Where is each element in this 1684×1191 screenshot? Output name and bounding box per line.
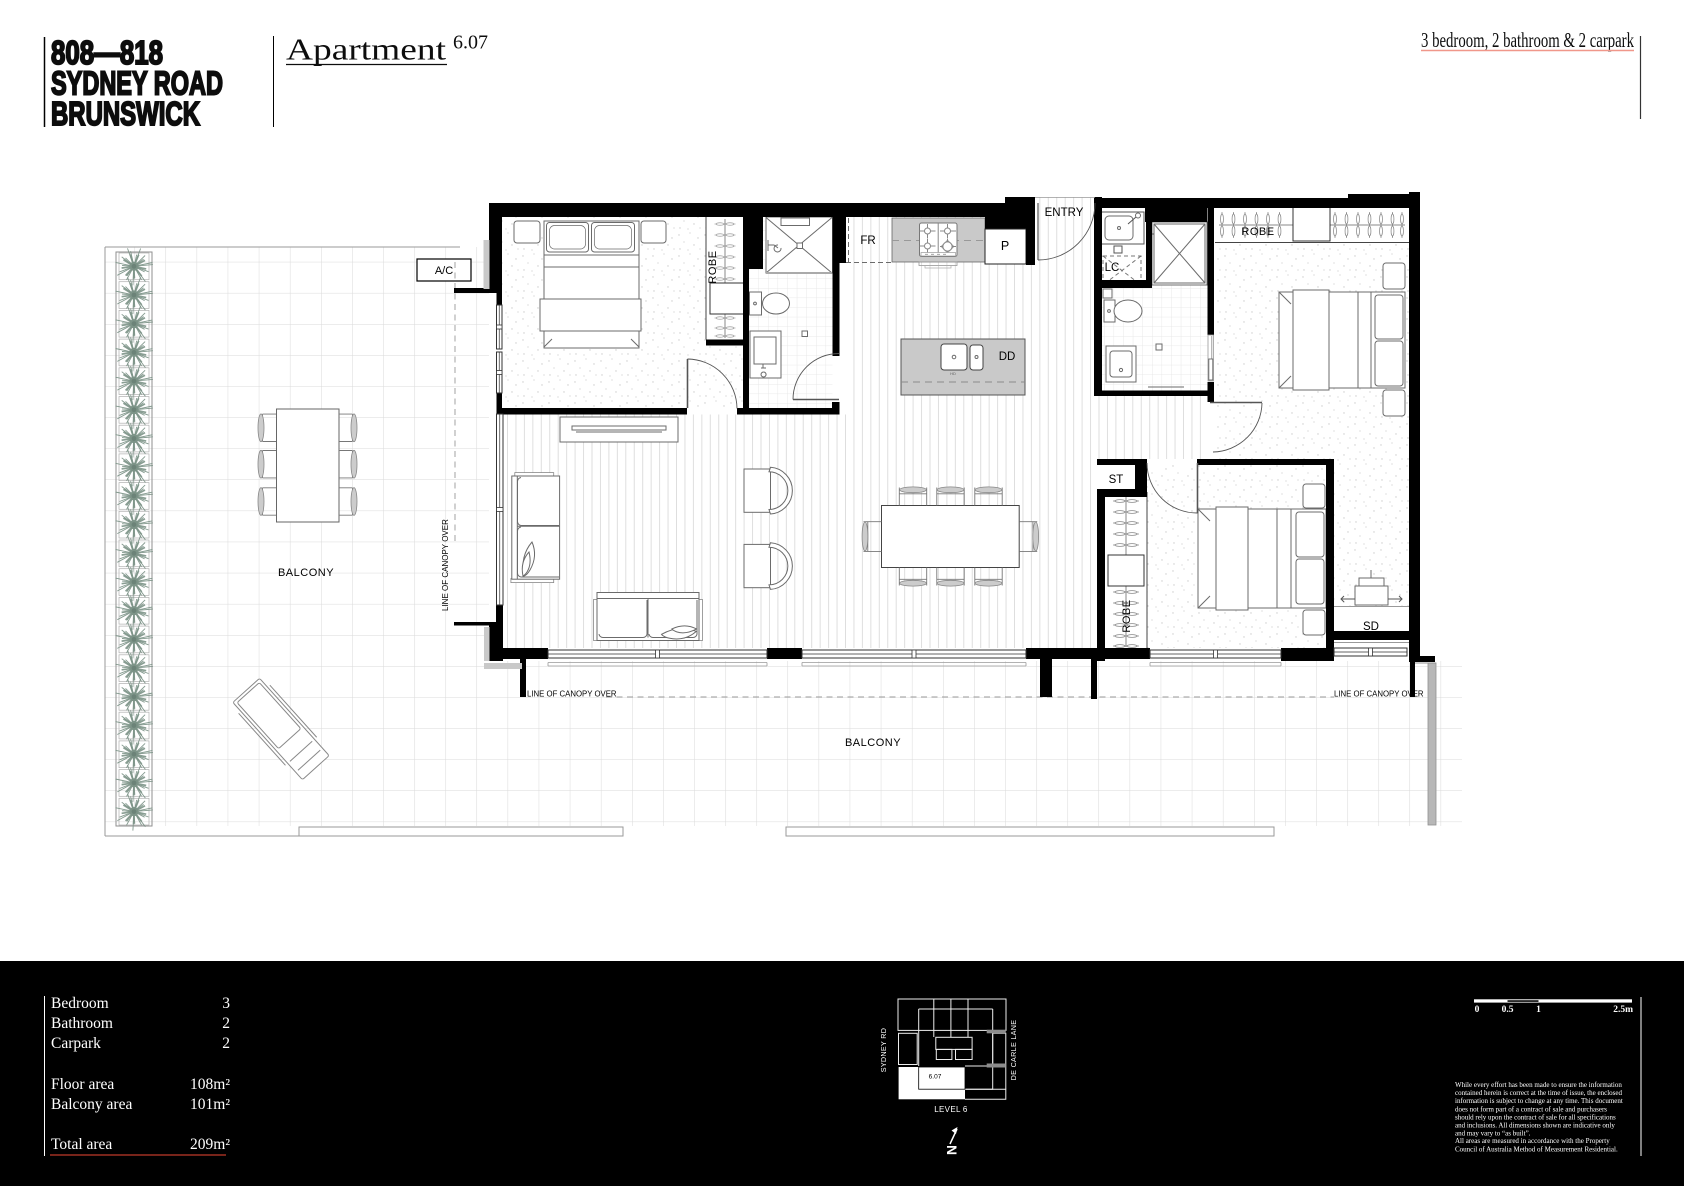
svg-text:contained herein is correct at: contained herein is correct at the time …: [1455, 1089, 1622, 1097]
svg-text:Council of Australia Method of: Council of Australia Method of Measureme…: [1455, 1145, 1618, 1153]
svg-text:N: N: [944, 1145, 960, 1155]
svg-text:ST: ST: [1109, 474, 1124, 486]
svg-text:3: 3: [222, 995, 230, 1012]
svg-text:BRUNSWICK: BRUNSWICK: [51, 96, 200, 133]
svg-text:LINE OF CANOPY OVER: LINE OF CANOPY OVER: [441, 519, 450, 611]
svg-text:0.5: 0.5: [1502, 1005, 1514, 1015]
svg-text:While every effort has been ma: While every effort has been made to ensu…: [1455, 1081, 1622, 1089]
svg-text:6.07: 6.07: [929, 1074, 942, 1081]
svg-text:LINE OF CANOPY OVER: LINE OF CANOPY OVER: [527, 690, 617, 699]
svg-text:Bathroom: Bathroom: [51, 1015, 113, 1032]
svg-text:101m²: 101m²: [190, 1096, 230, 1113]
svg-text:SYDNEY RD: SYDNEY RD: [879, 1028, 888, 1073]
svg-text:DE CARLE LANE: DE CARLE LANE: [1009, 1020, 1018, 1081]
svg-text:Apartment: Apartment: [286, 33, 447, 67]
svg-text:P: P: [1001, 239, 1009, 253]
svg-text:All areas are measured in acco: All areas are measured in accordance wit…: [1455, 1137, 1610, 1145]
svg-text:SD: SD: [1363, 621, 1379, 633]
svg-text:BALCONY: BALCONY: [845, 737, 901, 749]
svg-text:LC: LC: [1105, 262, 1120, 274]
svg-text:LEVEL 6: LEVEL 6: [934, 1105, 968, 1114]
svg-text:BALCONY: BALCONY: [278, 567, 334, 579]
svg-text:ENTRY: ENTRY: [1045, 207, 1084, 219]
svg-text:3 bedroom, 2 bathroom & 2 carp: 3 bedroom, 2 bathroom & 2 carpark: [1421, 28, 1634, 52]
svg-text:209m²: 209m²: [190, 1136, 230, 1153]
svg-text:A/C: A/C: [435, 265, 453, 277]
svg-text:1: 1: [1536, 1005, 1541, 1015]
svg-text:HD: HD: [950, 371, 956, 376]
svg-text:should rely upon the contract: should rely upon the contract of sale fo…: [1455, 1113, 1616, 1121]
svg-text:DD: DD: [999, 351, 1016, 363]
svg-text:Carpark: Carpark: [51, 1035, 101, 1052]
svg-text:and inclusions. All dimensions: and inclusions. All dimensions shown are…: [1455, 1122, 1615, 1130]
svg-text:does not form part of a contra: does not form part of a contract of sale…: [1455, 1105, 1607, 1113]
svg-text:6.07: 6.07: [453, 32, 488, 54]
svg-text:2: 2: [222, 1035, 230, 1052]
svg-text:ROBE: ROBE: [707, 250, 719, 283]
svg-text:ROBE: ROBE: [1241, 226, 1274, 238]
svg-text:Bedroom: Bedroom: [51, 995, 109, 1012]
svg-text:ROBE: ROBE: [1121, 599, 1133, 632]
svg-text:Total area: Total area: [51, 1136, 112, 1153]
svg-text:0: 0: [1475, 1005, 1480, 1015]
svg-text:information is subject to chan: information is subject to change at any …: [1455, 1097, 1623, 1105]
svg-text:FR: FR: [860, 235, 875, 247]
svg-text:2.5m: 2.5m: [1613, 1005, 1633, 1015]
svg-text:Balcony area: Balcony area: [51, 1096, 132, 1113]
svg-text:108m²: 108m²: [190, 1076, 230, 1093]
svg-text:2: 2: [222, 1015, 230, 1032]
svg-text:Floor area: Floor area: [51, 1076, 114, 1093]
